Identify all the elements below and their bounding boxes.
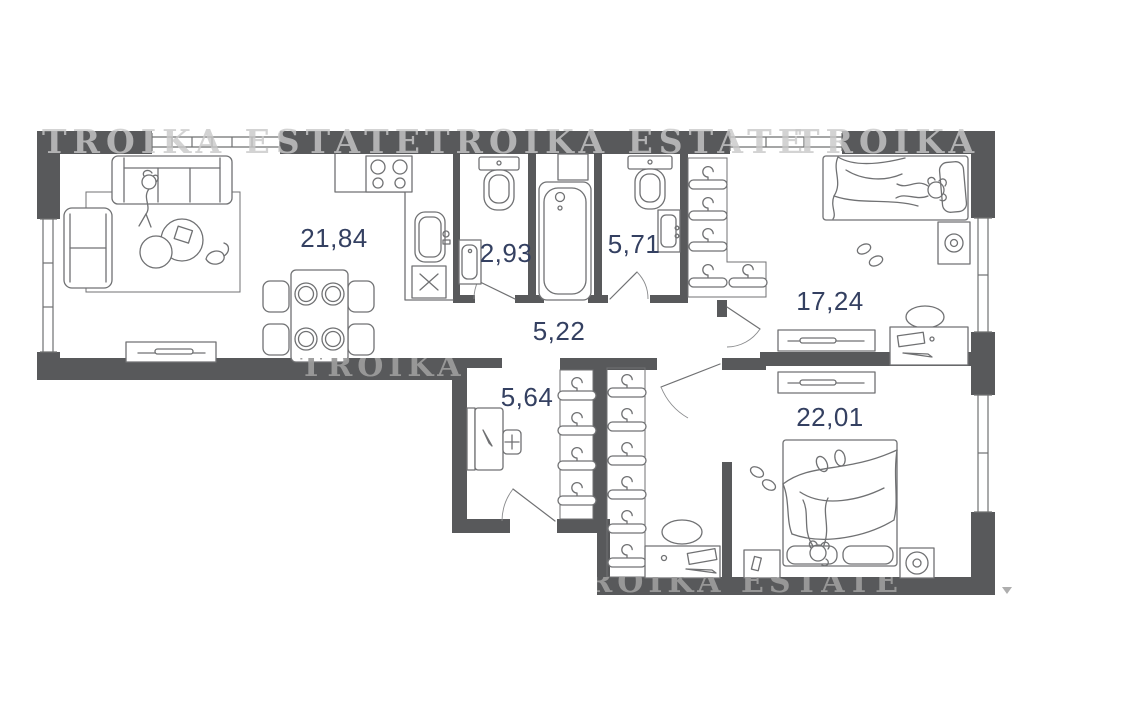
door-entrance (502, 489, 555, 521)
watermark-top-right: TROIKA ESTATE (795, 122, 1130, 161)
desk-bedroom1 (890, 306, 968, 365)
wall-sink (658, 210, 680, 252)
door-bedroom-1 (727, 307, 760, 347)
kitchen-sink (415, 212, 450, 262)
dining-chair (348, 281, 374, 312)
door-bathroom (610, 272, 648, 299)
wash-basin (459, 240, 481, 284)
dining-chair (348, 324, 374, 355)
coffee-tables (140, 219, 203, 268)
bathtub (539, 182, 591, 300)
bathtub-room (539, 154, 591, 300)
tv-stand (126, 342, 216, 362)
living-room (64, 154, 453, 362)
desk-bedroom2 (645, 520, 720, 578)
room-area-living: 21,84 (300, 223, 368, 253)
wardrobe-bedroom1 (688, 158, 767, 297)
watermark-top-left: TROIKA ESTATE (42, 122, 426, 161)
chair (662, 520, 702, 544)
dresser-bedroom2 (778, 372, 875, 393)
room-area-entry: 5,64 (501, 382, 554, 412)
room-area-bathroom: 5,71 (608, 229, 661, 259)
chair (906, 306, 944, 328)
dining-chair (263, 281, 289, 312)
cat (206, 243, 229, 264)
room-area-bedroom2: 22,01 (796, 402, 864, 432)
dining-table (263, 270, 374, 362)
window-bedroom2-right (971, 395, 995, 512)
floor-plan: 21,84 2,93 5,71 5,22 17,24 5,64 22,01 TR… (0, 0, 1130, 720)
entry-hanger-rack (558, 370, 596, 519)
console-mirror (467, 408, 521, 470)
hanger-rack-bedroom2 (607, 368, 646, 577)
nightstand-lamp (938, 222, 970, 264)
single-bed (823, 156, 968, 220)
bedroom-1 (688, 156, 970, 365)
sofa (112, 156, 232, 204)
dresser-bedroom1 (778, 330, 875, 351)
double-bed (783, 440, 897, 566)
room-area-wc: 2,93 (480, 238, 533, 268)
room-area-hallway: 5,22 (533, 316, 586, 346)
toilet (479, 157, 519, 210)
toilet (628, 156, 672, 209)
watermarks: TROIKA ESTATE TROIKA ESTATE TROIKA ESTAT… (42, 122, 1130, 161)
floor-plan-canvas: 21,84 2,93 5,71 5,22 17,24 5,64 22,01 TR… (0, 0, 1130, 720)
armchair (64, 208, 112, 288)
cursor-artifact (1002, 587, 1012, 594)
stove (366, 156, 412, 192)
window-living-left (37, 219, 60, 352)
dining-chair (263, 324, 289, 355)
nightstand-bedroom2 (744, 550, 780, 578)
window-bedroom1-right (971, 218, 995, 332)
door-bedroom-2 (661, 364, 720, 418)
slippers (749, 465, 778, 493)
bedroom-2 (607, 368, 934, 578)
kitchen-cabinet (412, 266, 446, 298)
room-area-bedroom1: 17,24 (796, 286, 864, 316)
watermark-top-center: TROIKA ESTATE (425, 122, 809, 161)
slippers (856, 242, 884, 268)
pillow (843, 546, 893, 564)
lamp-bedroom2 (900, 548, 934, 578)
